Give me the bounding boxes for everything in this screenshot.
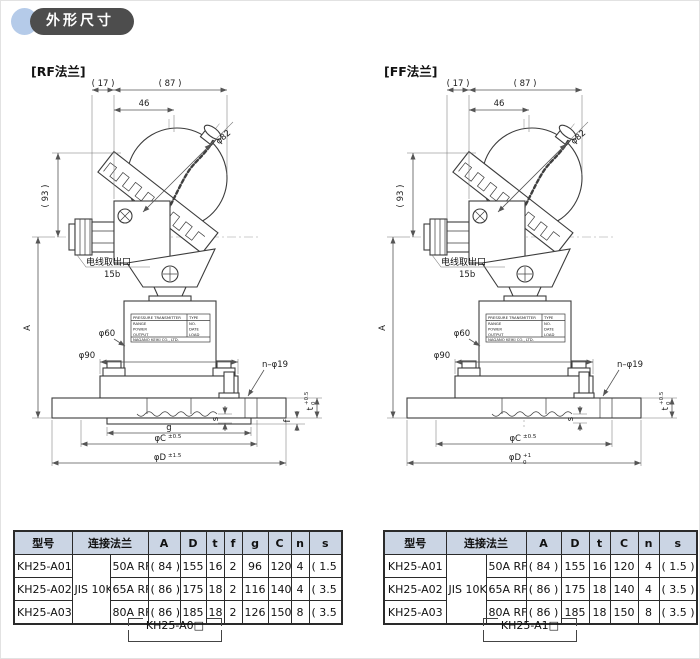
dim-g: g — [166, 423, 171, 433]
column-header: 型号 — [384, 531, 446, 555]
page-title: 外形尺寸 — [30, 8, 134, 35]
column-header: 连接法兰 — [446, 531, 526, 555]
spec-cell: 16 — [206, 555, 224, 578]
spec-cell: ( 84 ) — [148, 555, 180, 578]
spec-cell: 140 — [610, 578, 638, 601]
spec-cell: 120 — [268, 555, 291, 578]
flange-std-cell: JIS 10K — [72, 555, 110, 625]
spec-cell: 150 — [610, 601, 638, 625]
rf-model-code-box: KH25-A0□ — [128, 618, 222, 642]
spec-cell: ( 3.5 ) — [659, 601, 697, 625]
table-row: KH25-A02 65A RF ( 86 ) 175 18 140 4 ( 3.… — [384, 578, 697, 601]
spec-cell: 150 — [268, 601, 291, 625]
column-header: A — [526, 531, 561, 555]
spec-cell: 4 — [638, 578, 659, 601]
spec-cell: 16 — [589, 555, 610, 578]
model-cell: KH25-A03 — [14, 601, 72, 625]
ff-model-code-box: KH25-A1□ — [483, 618, 577, 642]
table-row: KH25-A01 JIS 10K 50A RF ( 84 ) 155 16 12… — [384, 555, 697, 578]
spec-cell: 140 — [268, 578, 291, 601]
spec-cell: ( 86 ) — [148, 578, 180, 601]
column-header: g — [242, 531, 268, 555]
column-header: n — [638, 531, 659, 555]
spec-cell: 2 — [224, 555, 242, 578]
column-header: t — [589, 531, 610, 555]
column-header: C — [610, 531, 638, 555]
spec-cell: 96 — [242, 555, 268, 578]
column-header: C — [268, 531, 291, 555]
spec-cell: ( 84 ) — [526, 555, 561, 578]
spec-cell: ( 3.5 ) — [659, 578, 697, 601]
dim-f: f — [283, 419, 293, 423]
spec-cell: 65A RF — [486, 578, 526, 601]
column-header: D — [180, 531, 206, 555]
model-cell: KH25-A01 — [14, 555, 72, 578]
ff-flange-drawing: φD +1 0 — [374, 75, 700, 495]
spec-cell: ( 3.5 ) — [309, 601, 342, 625]
model-cell: KH25-A01 — [384, 555, 446, 578]
model-cell: KH25-A03 — [384, 601, 446, 625]
spec-cell: 155 — [180, 555, 206, 578]
spec-cell: 8 — [638, 601, 659, 625]
column-header: s — [659, 531, 697, 555]
spec-cell: 18 — [589, 578, 610, 601]
ff-spec-table: 型号 连接法兰 A D t C n s KH25-A01 JIS 10K 50A… — [383, 530, 698, 625]
dim-phiD-tol-sub: 0 — [523, 460, 527, 466]
table-row: KH25-A02 65A RF ( 86 ) 175 18 2 116 140 … — [14, 578, 342, 601]
rf-model-code: KH25-A0□ — [128, 619, 222, 632]
spec-cell: 120 — [610, 555, 638, 578]
spec-cell: 2 — [224, 601, 242, 625]
spec-cell: 175 — [180, 578, 206, 601]
spec-cell: 2 — [224, 578, 242, 601]
dim-phiD-tol-sup: +1 — [523, 453, 531, 459]
spec-cell: 4 — [291, 555, 309, 578]
spec-cell: 116 — [242, 578, 268, 601]
spec-cell: ( 1.5 ) — [309, 555, 342, 578]
rf-flange-drawing: g f φD ±1.5 — [19, 75, 354, 495]
column-header: A — [148, 531, 180, 555]
spec-cell: 50A RF — [486, 555, 526, 578]
spec-cell: 175 — [561, 578, 589, 601]
dim-phiD-tol: ±1.5 — [168, 453, 182, 459]
column-header: 型号 — [14, 531, 72, 555]
datasheet-page: 外形尺寸 [RF法兰] [FF法兰] — [0, 0, 700, 659]
spec-cell: 8 — [291, 601, 309, 625]
spec-cell: ( 1.5 ) — [659, 555, 697, 578]
model-cell: KH25-A02 — [384, 578, 446, 601]
column-header: f — [224, 531, 242, 555]
flange-std-cell: JIS 10K — [446, 555, 486, 625]
model-cell: KH25-A02 — [14, 578, 72, 601]
dim-phiD: φD — [509, 453, 522, 463]
spec-cell: 126 — [242, 601, 268, 625]
spec-cell: 155 — [561, 555, 589, 578]
spec-cell: 18 — [589, 601, 610, 625]
spec-cell: ( 3.5 ) — [309, 578, 342, 601]
column-header: s — [309, 531, 342, 555]
rf-spec-table: 型号 连接法兰 A D t f g C n s KH25-A01 JIS 10K… — [13, 530, 343, 625]
spec-cell: 65A RF — [110, 578, 148, 601]
column-header: D — [561, 531, 589, 555]
column-header: n — [291, 531, 309, 555]
column-header: 连接法兰 — [72, 531, 148, 555]
column-header: t — [206, 531, 224, 555]
table-row: KH25-A01 JIS 10K 50A RF ( 84 ) 155 16 2 … — [14, 555, 342, 578]
dim-phiD: φD — [154, 453, 167, 463]
spec-cell: 4 — [291, 578, 309, 601]
spec-cell: ( 86 ) — [526, 578, 561, 601]
spec-cell: 18 — [206, 578, 224, 601]
ff-model-code: KH25-A1□ — [483, 619, 577, 632]
spec-cell: 50A RF — [110, 555, 148, 578]
spec-cell: 4 — [638, 555, 659, 578]
